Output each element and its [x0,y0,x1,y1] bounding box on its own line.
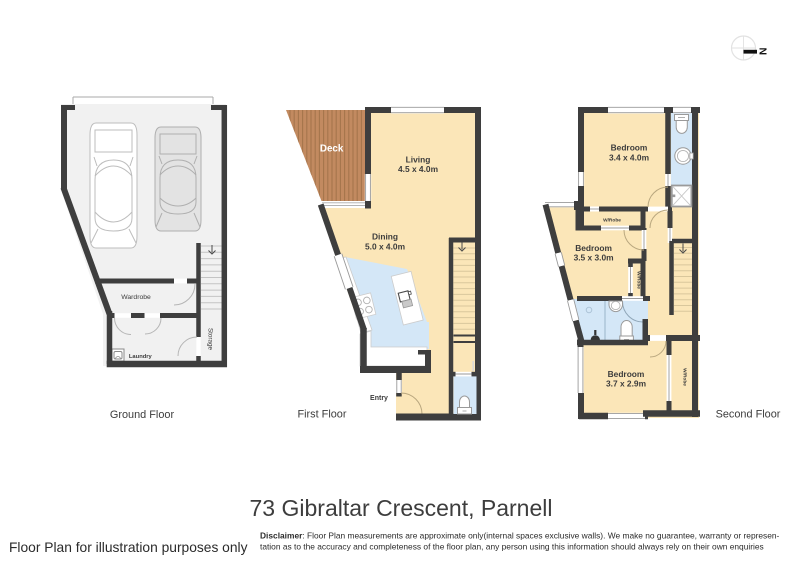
svg-text:Wardrobe: Wardrobe [121,294,151,301]
svg-text:Second Floor: Second Floor [716,409,781,421]
svg-text:Floor Plan for illustration pu: Floor Plan for illustration purposes onl… [9,540,248,555]
svg-text:73 Gibraltar Crescent, Parnell: 73 Gibraltar Crescent, Parnell [250,495,553,521]
svg-text:W/Robe: W/Robe [603,218,621,224]
svg-text:Bedroom: Bedroom [608,369,645,379]
svg-text:4.5 x 4.0m: 4.5 x 4.0m [398,164,438,174]
svg-text:Deck: Deck [320,143,344,154]
svg-text:3.4 x 4.0m: 3.4 x 4.0m [609,152,649,162]
svg-text:Living: Living [406,155,431,165]
svg-text:3.7 x 2.9m: 3.7 x 2.9m [606,379,646,389]
svg-text:W/Robe: W/Robe [682,368,688,386]
svg-text:Disclaimer: Floor Plan measure: Disclaimer: Floor Plan measurements are … [260,531,780,541]
svg-text:5.0 x 4.0m: 5.0 x 4.0m [365,241,405,251]
svg-text:Dining: Dining [372,232,398,242]
svg-text:tation as to the accuracy and: tation as to the accuracy and completene… [260,542,764,552]
svg-text:Laundry: Laundry [129,354,153,360]
svg-text:3.5 x 3.0m: 3.5 x 3.0m [574,253,614,263]
svg-text:Bedroom: Bedroom [575,243,612,253]
svg-text:Bedroom: Bedroom [611,143,648,153]
svg-text:Storage: Storage [207,328,214,351]
svg-text:N: N [757,48,769,56]
svg-text:Ground Floor: Ground Floor [110,409,175,421]
svg-text:First Floor: First Floor [297,409,346,421]
svg-text:Entry: Entry [370,395,388,402]
svg-text:W/Robe: W/Robe [636,271,642,289]
